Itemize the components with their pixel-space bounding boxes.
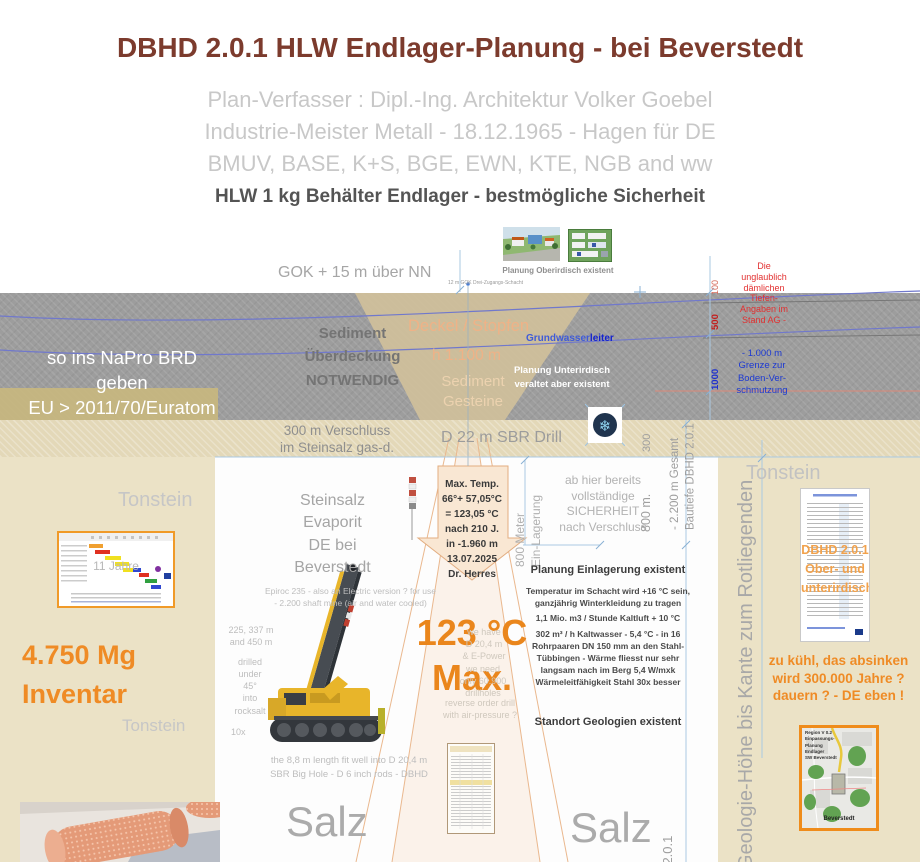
max-temp-note: Max. Temp. 66°+ 57,05°C = 123,05 °C nach… xyxy=(430,477,514,582)
plan-document-image: DBHD 2.0.1 Ober- und unterirdisch xyxy=(800,488,870,642)
groundwater-label-a: Grundwasser xyxy=(526,333,590,344)
plan-paragraph-3: 302 m³ / h Kaltwasser - 5,4 °C - in 16 R… xyxy=(512,629,704,688)
page-title: DBHD 2.0.1 HLW Endlager-Planung - bei Be… xyxy=(0,32,920,64)
rig-reverse-note: reverse order drill with air-pressure ? xyxy=(434,697,526,721)
epiroc-note: Epiroc 235 - also an Electric version ? … xyxy=(238,586,463,610)
dbhd-vertical-label: DBHD 2.0.1 xyxy=(660,815,678,862)
shaft-note: 12 m GOK Drei-Zugangs-Schacht xyxy=(448,280,523,286)
map-town-label: Beverstedt xyxy=(802,816,876,822)
einlagerung-vertical: 800 Meter Ein-Lagerung xyxy=(512,462,546,567)
unterirdisch-note: Planung Unterirdisch veraltet aber exist… xyxy=(502,364,622,393)
region-map-image: Region V 0.2 Einpassungs- Planung Endlag… xyxy=(799,725,879,831)
rig-we-have-note: we have D 20,4 m & E-Power xyxy=(452,626,516,662)
steinsalz-label: Steinsalz Evaporit DE bei Beverstedt xyxy=(265,490,400,580)
m800-vertical: 800 m. xyxy=(639,484,655,532)
verschluss-label: 300 m Verschluss im Steinsalz gas-d. xyxy=(266,423,408,457)
page-subtitle: Plan-Verfasser : Dipl.-Ing. Architektur … xyxy=(0,84,920,180)
surface-render-image xyxy=(503,227,560,261)
snowflake-icon: ❄ xyxy=(599,418,612,435)
rig-we-need-note: we need only 60.900 drillholes xyxy=(448,663,518,699)
deckel-label: Deckel / Stopfen xyxy=(408,317,529,336)
sbr-drill-label: D 22 m SBR Drill xyxy=(441,429,562,447)
rig-10x-note: 10x xyxy=(231,727,246,737)
salz-left-label: Salz xyxy=(286,798,368,846)
groundwater-label: Grundwasserleiter xyxy=(526,333,614,344)
ruler-mark-500: 500 xyxy=(710,310,723,330)
standort-label: Standort Geologien existent xyxy=(512,716,704,728)
tonstein-left-top-label: Tonstein xyxy=(118,489,193,512)
poster-canvas: DBHD 2.0.1 HLW Endlager-Planung - bei Be… xyxy=(0,0,920,862)
gantt-watermark: 11 Jahre xyxy=(59,559,173,573)
ruler-red-note: Die unglaublich dämlichen Tiefen- Angabe… xyxy=(726,261,802,326)
salz-right-label: Salz xyxy=(570,804,652,852)
page-tagline: HLW 1 kg Behälter Endlager - bestmöglich… xyxy=(0,186,920,208)
rig-fit-note: the 8,8 m length fit well into D 20,4 m … xyxy=(234,754,464,783)
gesamt-depth-vertical: - 2.200 m Gesamt Bautiefe DBHD 2.0.1 xyxy=(668,422,702,530)
napro-note: so ins NaPro BRD geben EU > 2011/70/Eura… xyxy=(22,346,222,421)
sediment-note: Sediment Überdeckung NOTWENDIG xyxy=(295,322,410,392)
surface-plan-caption: Planung Oberirdisch existent xyxy=(488,266,628,275)
ruler-mark-100: 100 xyxy=(710,271,723,295)
plan-document-overlay: DBHD 2.0.1 Ober- und unterirdisch xyxy=(801,541,869,597)
plan-paragraph-1: Temperatur im Schacht wird +16 °C sein, … xyxy=(512,586,704,610)
tonstein-left-bottom-label: Tonstein xyxy=(122,716,185,736)
rig-drilled-note: drilled under 45° into rocksalt xyxy=(226,656,274,717)
gantt-chart-image: 11 Jahre xyxy=(57,531,175,608)
plan-paragraph-2: 1,1 Mio. m3 / Stunde Kaltluft + 10 °C xyxy=(512,613,704,623)
depth-300-label: 300 xyxy=(641,420,655,452)
site-plan-image xyxy=(568,229,612,262)
freeze-marker-box: ❄ xyxy=(585,404,625,446)
mesh-roll-photo xyxy=(20,802,220,862)
rig-depths-note: 225, 337 m and 450 m xyxy=(220,624,282,648)
geologie-vertical-label: Geologie-Höhe bis Kante zum Rotliegenden xyxy=(735,470,763,862)
inventar-label: 4.750 Mg Inventar xyxy=(22,636,136,714)
gok-label: GOK + 15 m über NN xyxy=(278,264,431,282)
groundwater-label-b: leiter xyxy=(590,333,614,344)
kuehl-note: zu kühl, das absinken wird 300.000 Jahre… xyxy=(766,652,911,705)
ruler-blue-note: - 1.000 m Grenze zur Boden-Ver- schmutzu… xyxy=(722,348,802,397)
h1100-label: h 1.100 m xyxy=(432,347,501,365)
plan-heading: Planung Einlagerung existent xyxy=(512,564,704,576)
map-title-label: Region V 0.2 Einpassungs- Planung Endlag… xyxy=(805,730,837,761)
